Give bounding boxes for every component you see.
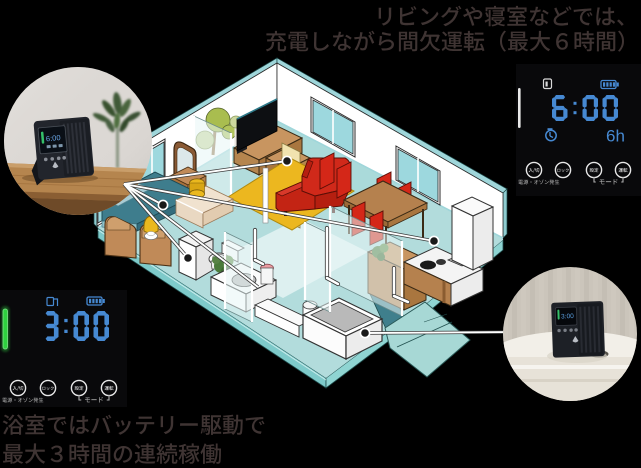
svg-text:6:00: 6:00 <box>46 133 61 143</box>
svg-text:6h: 6h <box>606 127 625 146</box>
svg-text:3:00: 3:00 <box>561 313 574 320</box>
